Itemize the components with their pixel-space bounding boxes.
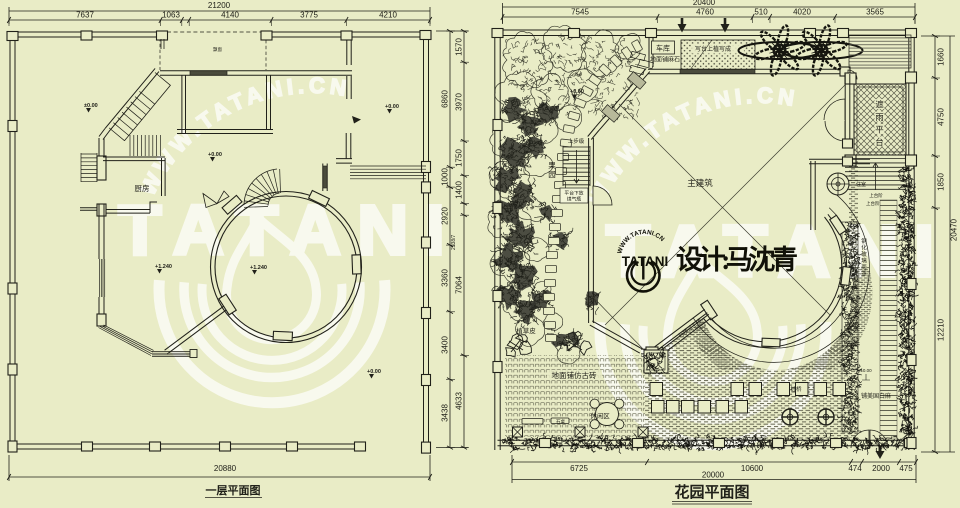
svg-text:+0.60: +0.60 bbox=[570, 89, 584, 95]
svg-text:20470: 20470 bbox=[950, 218, 959, 241]
svg-text:园: 园 bbox=[548, 170, 556, 179]
svg-text:2938/7: 2938/7 bbox=[451, 234, 457, 250]
svg-text:1063: 1063 bbox=[162, 11, 180, 20]
svg-text:台: 台 bbox=[875, 137, 884, 147]
svg-text:地面铺仿古砖: 地面铺仿古砖 bbox=[552, 370, 597, 380]
svg-text:1660: 1660 bbox=[937, 48, 946, 66]
svg-text:4760: 4760 bbox=[696, 8, 714, 17]
svg-text:设计:马沈青: 设计:马沈青 bbox=[676, 245, 798, 275]
svg-text:4750: 4750 bbox=[937, 108, 946, 126]
svg-text:4210: 4210 bbox=[379, 11, 397, 20]
svg-text:上台阶: 上台阶 bbox=[866, 200, 880, 207]
svg-text:20880: 20880 bbox=[214, 464, 237, 473]
svg-text:璃: 璃 bbox=[861, 257, 867, 265]
svg-text:平: 平 bbox=[875, 125, 884, 135]
svg-text:3565: 3565 bbox=[866, 8, 884, 17]
svg-text:7545: 7545 bbox=[571, 8, 589, 17]
svg-text:罩: 罩 bbox=[861, 271, 867, 278]
svg-text:6725: 6725 bbox=[570, 464, 588, 473]
svg-text:花园平面图: 花园平面图 bbox=[674, 483, 749, 501]
svg-text:3400: 3400 bbox=[441, 336, 450, 354]
svg-text:3360: 3360 bbox=[441, 269, 450, 287]
svg-text:铺美国白麻: 铺美国白麻 bbox=[861, 392, 891, 400]
svg-text:钢: 钢 bbox=[861, 237, 867, 245]
svg-text:玻: 玻 bbox=[861, 250, 867, 258]
svg-text:4020: 4020 bbox=[793, 8, 811, 17]
svg-text:4633: 4633 bbox=[455, 392, 464, 410]
svg-text:474: 474 bbox=[848, 464, 862, 473]
svg-text:10600: 10600 bbox=[741, 464, 764, 473]
svg-text:1850: 1850 bbox=[937, 173, 946, 191]
svg-text:地面铺麻石: 地面铺麻石 bbox=[650, 56, 680, 64]
svg-text:7637: 7637 bbox=[76, 11, 94, 20]
svg-text:4140: 4140 bbox=[221, 11, 239, 20]
svg-text:±0.00: ±0.00 bbox=[860, 368, 872, 373]
svg-text:车库: 车库 bbox=[656, 44, 670, 53]
svg-text:石桌: 石桌 bbox=[556, 418, 565, 425]
svg-text:3970: 3970 bbox=[455, 93, 464, 111]
svg-text:TATANI: TATANI bbox=[118, 191, 461, 269]
svg-text:20000: 20000 bbox=[702, 471, 725, 480]
svg-text:2920: 2920 bbox=[441, 207, 450, 225]
svg-text:1750: 1750 bbox=[455, 149, 464, 167]
svg-text:510: 510 bbox=[754, 8, 768, 17]
svg-text:3775: 3775 bbox=[300, 11, 318, 20]
svg-text:7064: 7064 bbox=[455, 276, 464, 294]
svg-text:475: 475 bbox=[899, 464, 913, 473]
svg-text:雨: 雨 bbox=[861, 264, 867, 271]
svg-text:平台下放: 平台下放 bbox=[564, 190, 583, 197]
svg-text:3438: 3438 bbox=[441, 404, 450, 422]
svg-text:写台上植写成: 写台上植写成 bbox=[695, 45, 731, 53]
svg-text:遮: 遮 bbox=[875, 100, 884, 110]
svg-text:6860: 6860 bbox=[441, 90, 450, 108]
svg-text:1570: 1570 bbox=[455, 38, 464, 56]
svg-text:休闲区: 休闲区 bbox=[590, 411, 610, 420]
svg-text:21200: 21200 bbox=[208, 1, 231, 10]
svg-text:上台阶: 上台阶 bbox=[869, 192, 883, 199]
svg-text:厨房: 厨房 bbox=[135, 183, 150, 193]
svg-text:主建筑: 主建筑 bbox=[687, 178, 713, 188]
svg-text:2000: 2000 bbox=[872, 464, 890, 473]
svg-text:煤气瓶: 煤气瓶 bbox=[567, 196, 582, 203]
svg-text:植草皮: 植草皮 bbox=[516, 326, 536, 335]
svg-text:桩桥: 桩桥 bbox=[790, 385, 802, 393]
svg-text:化: 化 bbox=[861, 244, 867, 252]
svg-text:1400: 1400 bbox=[455, 181, 464, 199]
svg-text:一层平面图: 一层平面图 bbox=[206, 484, 261, 497]
svg-text:雨: 雨 bbox=[875, 112, 884, 122]
svg-text:上步级: 上步级 bbox=[568, 137, 585, 145]
svg-text:12210: 12210 bbox=[937, 318, 946, 341]
svg-text:果: 果 bbox=[548, 161, 556, 170]
svg-text:1000: 1000 bbox=[441, 168, 450, 186]
svg-text:飘窗: 飘窗 bbox=[213, 46, 222, 53]
svg-text:住室: 住室 bbox=[856, 181, 866, 188]
svg-text:20400: 20400 bbox=[693, 0, 716, 7]
